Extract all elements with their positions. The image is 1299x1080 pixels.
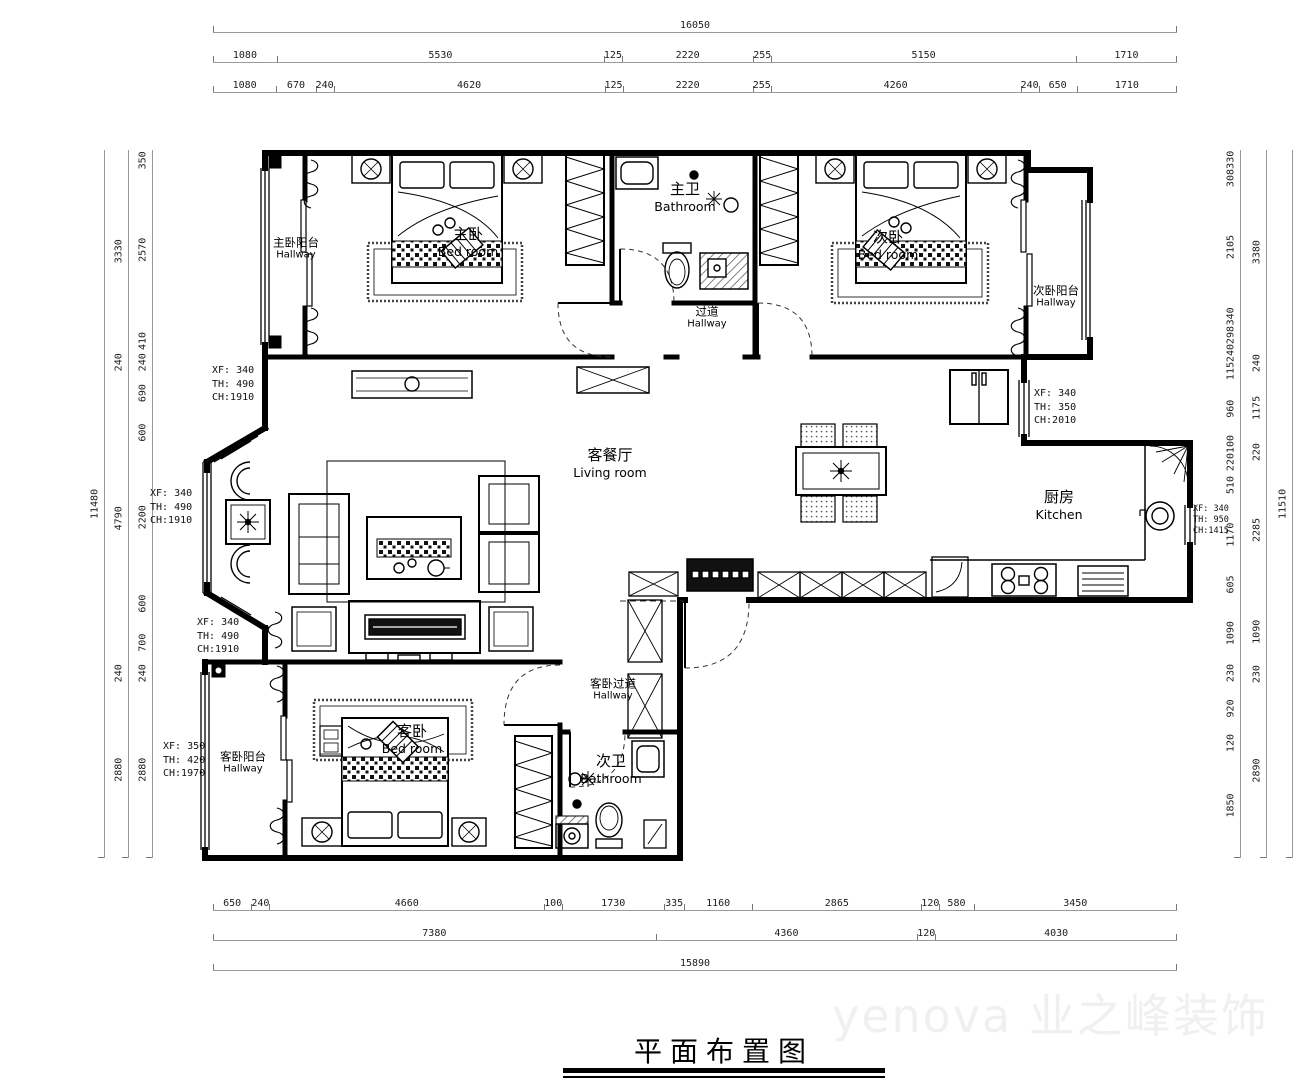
dim-label: 115 [1222,362,1240,380]
dim-label: 2880 [134,682,152,858]
dim-label: 330 [1222,150,1240,169]
dim-label: 255 [753,80,771,92]
room-label-guest-hall: 客卧过道 Hallway [590,677,636,704]
dim-label: 240 [134,664,152,682]
dim-chain-left-mid: 333024047902402880 [110,150,129,858]
floor-plan-drawing [0,0,1299,1080]
dim-label: 650 [1039,80,1077,92]
room-name-cn: 客卧过道 [590,677,636,691]
dim-label: 580 [939,898,973,910]
window-tag-line: TH: 490 [150,501,192,515]
master-bath-fixtures [616,157,748,289]
dim-chain-left-total: 11480 [86,150,105,858]
dim-label: 1730 [562,898,664,910]
dim-label: 2285 [1248,461,1266,599]
dim-chain-top-mid: 10805530125222025551501710 [213,44,1177,63]
dim-label: 1090 [1248,599,1266,665]
room-name-cn: 厨房 [1036,488,1083,507]
dim-chain-bottom-mid: 738043601204030 [213,922,1177,941]
window-second-balcony [1082,200,1090,340]
dim-label: 240 [110,664,128,682]
dim-label: 1080 [213,80,276,92]
entry-cabinets [628,559,926,738]
window-tag-line: CH:1910 [150,514,192,528]
dim-label: 4660 [269,898,544,910]
window-tag-line: XF: 340 [212,364,254,378]
room-name-en: Hallway [590,691,636,704]
room-label-second-bath: 次卫 Bathroom [580,752,641,786]
window-tag-line: TH: 490 [197,630,239,644]
room-name-en: Bed room [382,741,443,757]
dim-label: 2890 [1248,683,1266,858]
door-arcs [504,249,812,787]
dim-label: 240 [316,80,334,92]
dim-label: 120 [1222,734,1240,752]
dim-label: 11480 [86,150,104,858]
window-tag-line: CH:2010 [1034,414,1076,428]
window-tag-3: XF: 340 TH: 490 CH:1910 [197,616,239,657]
dim-label: 3330 [110,150,128,353]
dim-chain-top-inner: 10806702404620125222025542602406501710 [213,74,1177,93]
tv-cabinet [292,601,533,662]
dim-label: 410 [134,328,152,353]
dim-label: 960 [1222,381,1240,436]
dim-label: 4360 [656,928,918,940]
dim-label: 125 [604,50,622,62]
dim-label: 4620 [334,80,605,92]
dim-label: 7380 [213,928,656,940]
dim-label: 308 [1222,169,1240,187]
dim-label: 16050 [213,20,1177,32]
dim-label: 4790 [110,372,128,664]
dim-label: 2105 [1222,187,1240,307]
room-label-guest-balcony: 客卧阳台 Hallway [220,750,266,777]
dim-label: 1850 [1222,753,1240,859]
window-tag-line: XF: 340 [1193,504,1229,515]
fridge-icon [950,370,1008,424]
wall-cabinets [352,367,649,398]
window-tag-line: CH:1415 [1193,526,1229,537]
dim-label: 125 [605,80,623,92]
dim-label: 2570 [134,171,152,328]
bay-window-seat [226,462,270,583]
window-tag-line: XF: 340 [1034,387,1076,401]
room-name-cn: 主卧阳台 [273,236,319,250]
dim-label: 15890 [213,958,1177,970]
dim-label: 920 [1222,682,1240,734]
dim-label: 120 [921,898,939,910]
dim-label: 240 [1248,354,1266,372]
dim-label: 605 [1222,567,1240,602]
dim-label: 2880 [110,682,128,858]
dim-label: 5530 [277,50,604,62]
room-name-cn: 主卫 [654,180,715,199]
dim-label: 4030 [935,928,1177,940]
dim-label: 100 [544,898,562,910]
dim-label: 220 [1248,443,1266,461]
window-tag-line: CH:1910 [212,391,254,405]
room-name-cn: 次卫 [580,752,641,771]
sliding-doors [281,200,1032,802]
dim-label: 510 [1222,471,1240,500]
window-tag-4: XF: 350 TH: 420 CH:1970 [163,740,205,781]
window-tag-line: TH: 350 [1034,401,1076,415]
dim-chain-bottom-total: 15890 [213,952,1177,971]
dim-label: 1175 [1248,372,1266,443]
room-label-hallway: 过道 Hallway [687,305,726,332]
room-name-cn: 客卧 [382,722,443,741]
room-name-cn: 主卧 [438,225,499,244]
room-name-en: Hallway [1033,298,1079,311]
sofa-set [289,461,539,602]
window-tag-line: TH: 950 [1193,515,1229,526]
room-name-cn: 客卧阳台 [220,750,266,764]
dim-label: 11510 [1274,150,1292,858]
room-name-en: Hallway [273,250,319,263]
dim-label: 1160 [684,898,752,910]
dim-label: 230 [1248,665,1266,683]
dim-label: 230 [1222,664,1240,682]
dim-chain-bottom-inner: 65024046601001730335116028651205803450 [213,892,1177,911]
room-name-en: Bathroom [580,771,641,787]
watermark: yenova 业之峰装饰 [832,980,1269,1046]
dim-label: 3380 [1248,150,1266,354]
dim-label: 100 [1222,435,1240,453]
dim-label: 600 [134,585,152,622]
dim-label: 600 [134,414,152,451]
window-tag-line: TH: 420 [163,754,205,768]
room-name-en: Kitchen [1036,507,1083,523]
room-name-cn: 过道 [687,305,726,319]
window-tag-line: CH:1970 [163,767,205,781]
room-label-master-bath: 主卫 Bathroom [654,180,715,214]
dim-label: 1710 [1077,80,1177,92]
dim-label: 4260 [771,80,1021,92]
dim-label: 340 [1222,307,1240,326]
dim-chain-top-total: 16050 [213,14,1177,33]
plant-icon [237,511,259,533]
dim-label: 1710 [1076,50,1177,62]
window-tag-line: XF: 340 [197,616,239,630]
dim-label: 240 [1222,344,1240,362]
dim-label: 240 [110,353,128,371]
dim-label: 350 [134,150,152,171]
window-tag-line: CH:1910 [197,643,239,657]
dim-chain-right-mid: 33802401175220228510902302890 [1248,150,1267,858]
room-name-cn: 次卧 [858,228,919,247]
dim-chain-right-total: 11510 [1274,150,1293,858]
guest-wardrobe [515,736,552,848]
room-name-en: Bed room [858,247,919,263]
floor-plan-page: 16050 10805530125222025551501710 1080670… [0,0,1299,1080]
dim-label: 240 [251,898,269,910]
room-name-en: Hallway [220,764,266,777]
window-tag-line: TH: 490 [212,378,254,392]
dim-label: 2220 [623,80,753,92]
room-label-second-balcony: 次卧阳台 Hallway [1033,284,1079,311]
dim-label: 2865 [752,898,921,910]
plant-icon [830,460,852,482]
room-label-master-bedroom: 主卧 Bed room [438,225,499,259]
room-name-en: Bed room [438,244,499,260]
dim-label: 255 [753,50,771,62]
window-tag-1: XF: 340 TH: 490 CH:1910 [212,364,254,405]
second-wardrobe [760,153,798,265]
dim-label: 1090 [1222,602,1240,664]
dim-label: 3450 [974,898,1177,910]
window-tag-5: XF: 340 TH: 350 CH:2010 [1034,387,1076,428]
dim-label: 650 [213,898,251,910]
window-tag-line: XF: 350 [163,740,205,754]
dim-label: 670 [276,80,315,92]
room-label-living: 客餐厅 Living room [573,446,646,480]
room-name-en: Bathroom [654,199,715,215]
dim-label: 5150 [771,50,1076,62]
dim-label: 240 [134,353,152,371]
room-name-en: Living room [573,465,646,481]
room-label-guest-bedroom: 客卧 Bed room [382,722,443,756]
dim-label: 298 [1222,326,1240,344]
dim-label: 1080 [213,50,277,62]
dining-set [796,424,886,522]
window-kitchen-north [1019,380,1029,437]
room-name-cn: 客餐厅 [573,446,646,465]
dim-label: 2220 [622,50,753,62]
title-underline-thick [563,1068,885,1073]
dim-label: 700 [134,621,152,664]
master-wardrobe [566,153,604,265]
dim-label: 120 [917,928,935,940]
window-tag-6: XF: 340 TH: 950 CH:1415 [1193,504,1229,537]
room-name-en: Hallway [687,319,726,332]
window-tag-line: XF: 340 [150,487,192,501]
dim-label: 240 [1021,80,1039,92]
dim-label: 335 [664,898,684,910]
room-name-cn: 次卧阳台 [1033,284,1079,298]
dim-label: 220 [1222,453,1240,471]
room-label-master-balcony: 主卧阳台 Hallway [273,236,319,263]
window-tag-2: XF: 340 TH: 490 CH:1910 [150,487,192,528]
dim-label: 690 [134,372,152,414]
room-label-kitchen: 厨房 Kitchen [1036,488,1083,522]
window-master-balcony [261,168,269,345]
title-underline-thin [563,1076,885,1078]
room-label-second-bedroom: 次卧 Bed room [858,228,919,262]
